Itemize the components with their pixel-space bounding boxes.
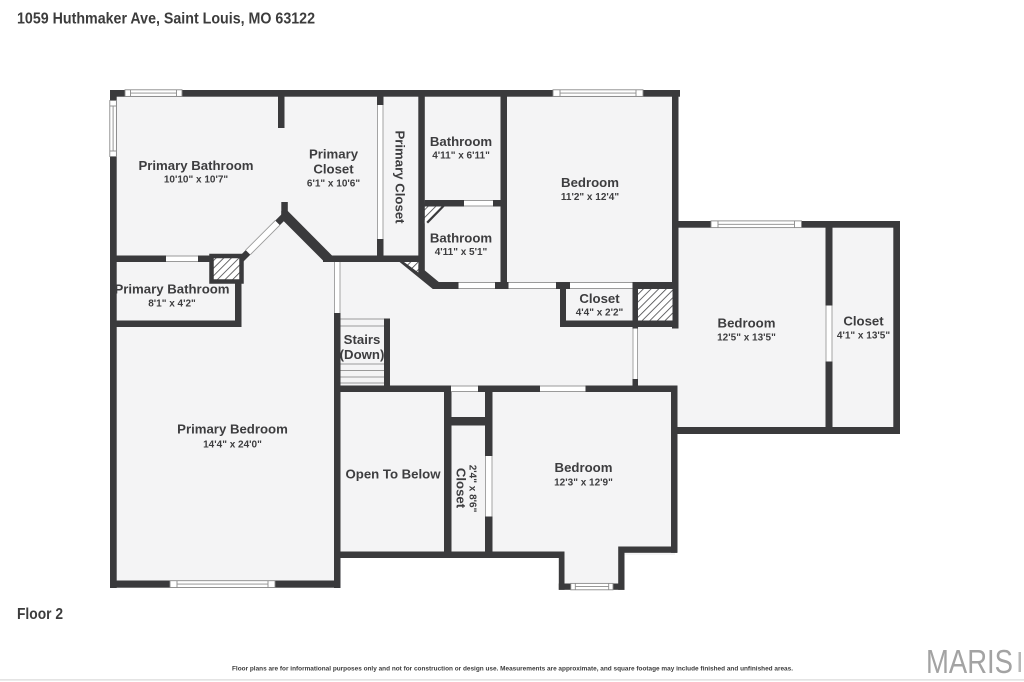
svg-text:Primary Bedroom: Primary Bedroom (177, 422, 288, 437)
svg-text:12'3" x 12'9": 12'3" x 12'9" (554, 477, 613, 488)
svg-text:Floor plans are for informatio: Floor plans are for informational purpos… (232, 666, 793, 673)
svg-text:Bathroom: Bathroom (430, 134, 492, 149)
svg-text:6'1" x 10'6": 6'1" x 10'6" (307, 179, 360, 190)
svg-text:1059 Huthmaker Ave, Saint Loui: 1059 Huthmaker Ave, Saint Louis, MO 6312… (17, 11, 315, 28)
svg-text:Primary Bathroom: Primary Bathroom (114, 281, 229, 296)
svg-text:Open To Below: Open To Below (346, 467, 442, 482)
svg-text:Bedroom: Bedroom (561, 175, 619, 190)
svg-text:14'4" x 24'0": 14'4" x 24'0" (203, 440, 262, 451)
svg-text:Primary Closet: Primary Closet (393, 130, 408, 224)
svg-text:Closet: Closet (843, 314, 884, 329)
svg-text:11'2" x 12'4": 11'2" x 12'4" (561, 192, 619, 203)
svg-text:(Down): (Down) (340, 347, 385, 362)
svg-text:Closet: Closet (313, 161, 354, 176)
svg-text:8'1" x 4'2": 8'1" x 4'2" (148, 299, 196, 310)
svg-text:4'1" x 13'5": 4'1" x 13'5" (837, 331, 890, 342)
svg-text:Closet: Closet (454, 468, 469, 509)
svg-text:4'4" x 2'2": 4'4" x 2'2" (576, 308, 624, 319)
svg-text:10'10" x 10'7": 10'10" x 10'7" (164, 175, 229, 186)
svg-text:Closet: Closet (579, 291, 620, 306)
svg-text:4'11" x 6'11": 4'11" x 6'11" (432, 151, 490, 162)
svg-text:MARIS: MARIS (926, 643, 1013, 680)
svg-text:Primary Bathroom: Primary Bathroom (138, 158, 253, 173)
svg-text:Bathroom: Bathroom (430, 231, 492, 246)
svg-text:Bedroom: Bedroom (718, 316, 776, 331)
svg-text:Floor 2: Floor 2 (17, 606, 63, 623)
svg-text:Bedroom: Bedroom (555, 460, 613, 475)
svg-text:2'4" x 8'6": 2'4" x 8'6" (467, 465, 478, 513)
svg-text:Stairs: Stairs (344, 332, 381, 347)
svg-text:Primary: Primary (309, 147, 359, 162)
svg-text:12'5" x 13'5": 12'5" x 13'5" (717, 333, 776, 344)
svg-text:4'11" x 5'1": 4'11" x 5'1" (435, 247, 488, 258)
